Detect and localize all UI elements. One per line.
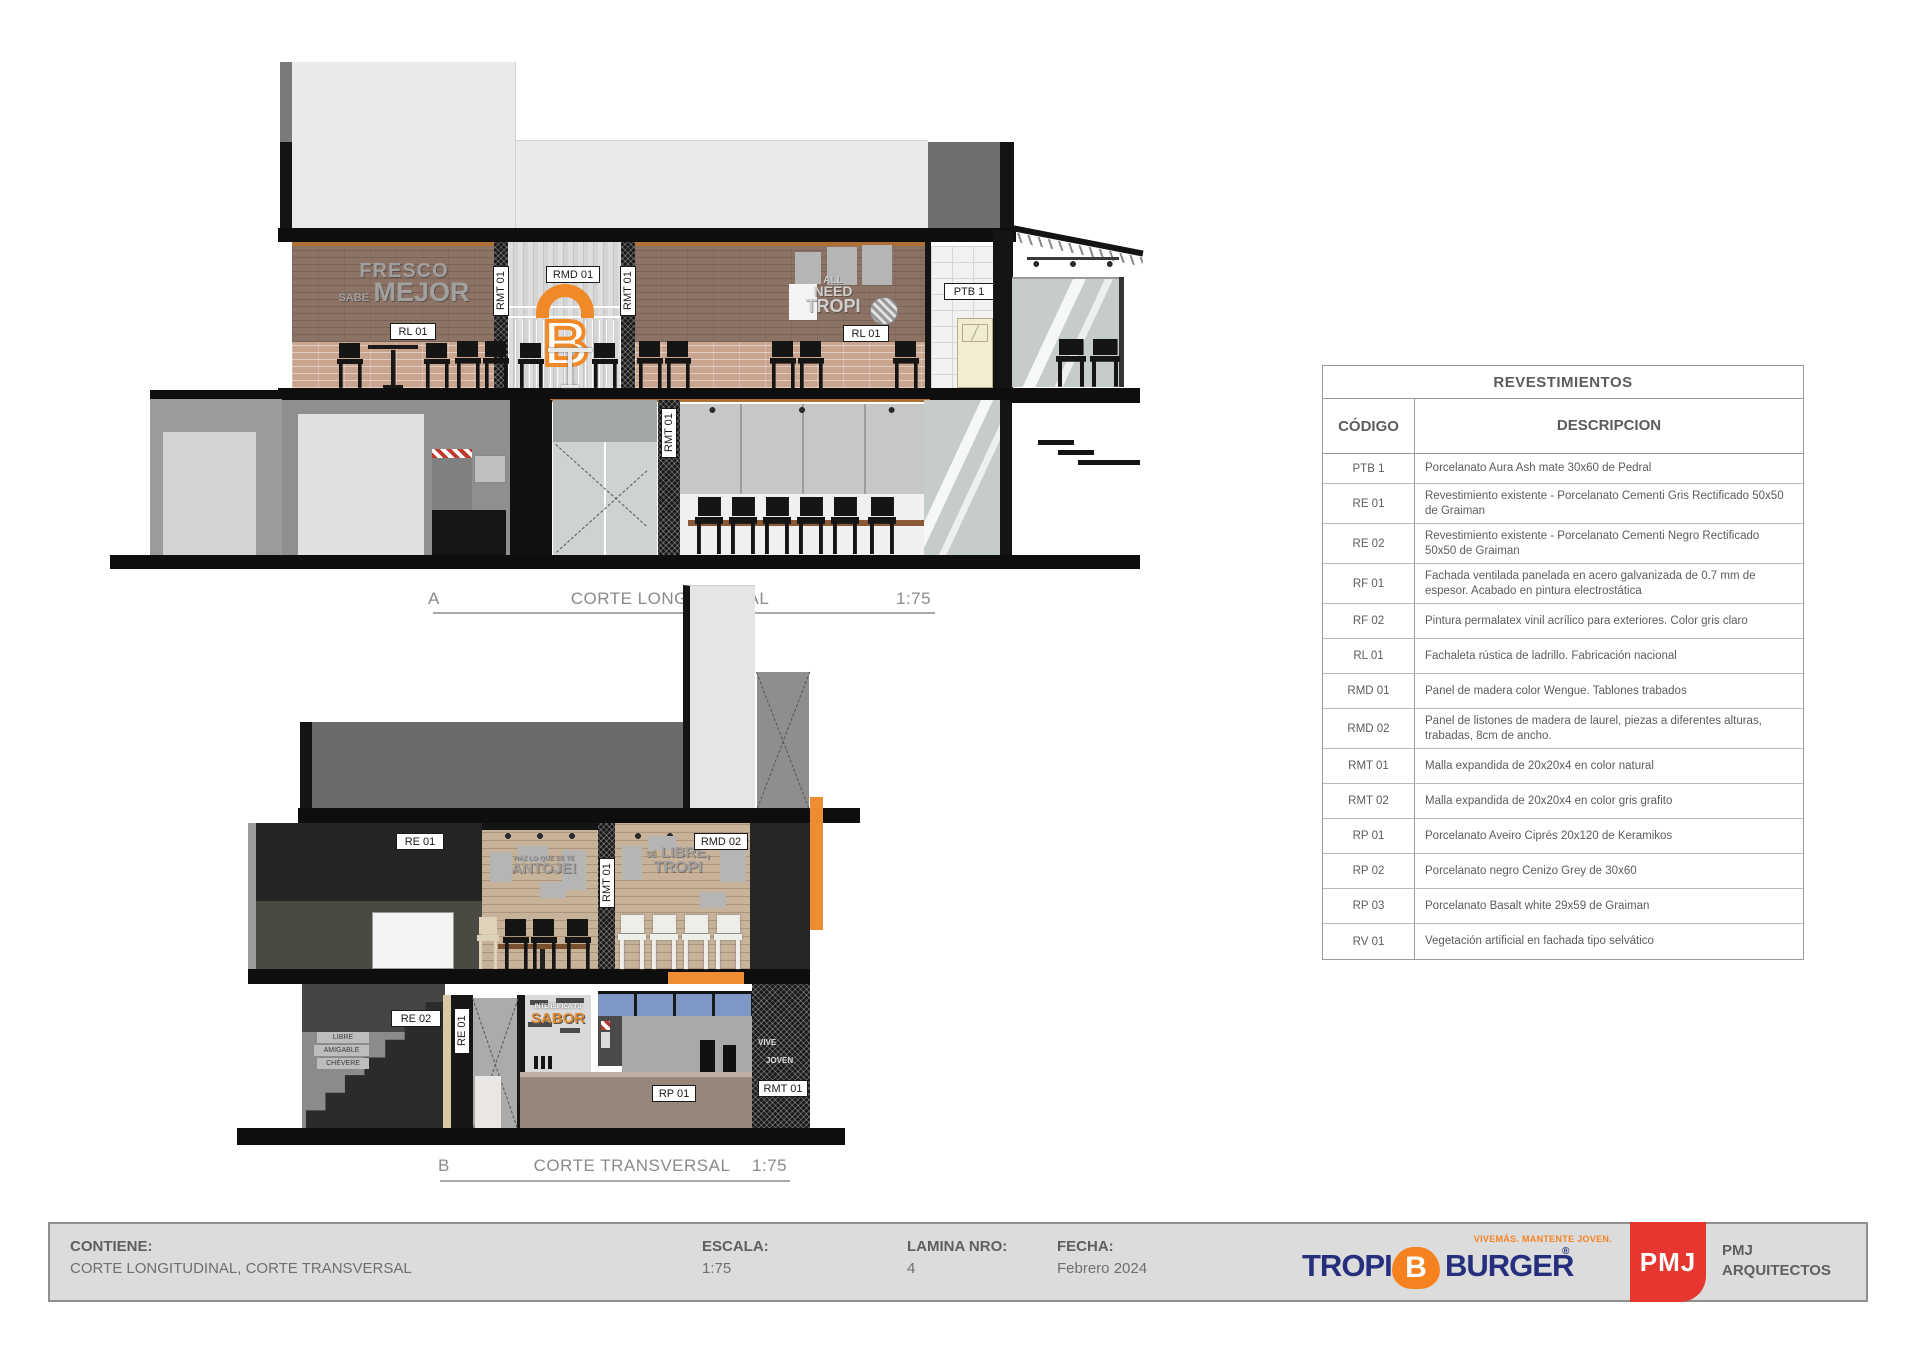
base-slab (237, 1128, 845, 1145)
materials-table: REVESTIMIENTOS CÓDIGO DESCRIPCION PTB 1P… (1322, 365, 1804, 960)
table-row: RP 03Porcelanato Basalt white 29x59 de G… (1323, 889, 1803, 924)
pmj-logo-text: PMJ (1640, 1247, 1696, 1278)
lamina-label: LAMINA NRO: (907, 1238, 1007, 1255)
firm-name-line1: PMJ (1722, 1242, 1753, 1259)
stair-sign-3: CHÉVERE (317, 1058, 369, 1069)
exterior-step-2 (1058, 450, 1094, 455)
stair-sign-2: AMIGABLE (314, 1045, 369, 1056)
dining-table (368, 345, 418, 388)
sheet-canvas: FRESCO SABE MEJOR RL 01 RMT 01 B RMD 01 … (0, 0, 1920, 1358)
material-desc: Revestimiento existente - Porcelanato Ce… (1415, 524, 1803, 563)
mezz-table (548, 348, 592, 388)
mezz-chair (518, 343, 544, 388)
brand-word-tropi: TROPI (1302, 1248, 1392, 1284)
bathroom-door-vent (962, 324, 988, 342)
mezz-chair (592, 343, 618, 388)
tag-rmt01-vb: RMT 01 (599, 858, 615, 908)
upper-left-strip (248, 823, 256, 969)
counter-chair (868, 497, 896, 554)
fresco-line2-small: SABE (338, 292, 369, 304)
tag-re01-v: RE 01 (454, 1008, 470, 1054)
white-chair (618, 915, 646, 969)
white-chair (714, 915, 742, 969)
tag-rl01-left: RL 01 (390, 323, 436, 340)
material-code: RMT 02 (1323, 784, 1415, 818)
tag-rmd02: RMD 02 (694, 833, 748, 850)
dining-chair (770, 341, 796, 388)
counter-chair (763, 497, 791, 554)
sabor-big: SABOR (528, 1010, 588, 1027)
material-desc: Vegetación artificial en fachada tipo se… (1415, 924, 1803, 959)
annex-roof (150, 390, 282, 399)
burger-b-letter: B (1405, 1253, 1427, 1283)
ground-column-black (510, 400, 552, 555)
firm-name-line2: ARQUITECTOS (1722, 1262, 1831, 1279)
material-desc: Porcelanato Basalt white 29x59 de Graima… (1415, 889, 1803, 923)
fresco-line2-big: MEJOR (373, 277, 469, 307)
bottle (534, 1056, 538, 1069)
round-logo-plate (870, 297, 898, 325)
material-desc: Malla expandida de 20x20x4 en color gris… (1415, 784, 1803, 818)
libre-small: SÉ (646, 850, 657, 859)
material-code: RMD 02 (1323, 709, 1415, 748)
dining-chair (798, 341, 824, 388)
tag-re01: RE 01 (396, 833, 444, 850)
column-header-descripcion: DESCRIPCION (1415, 399, 1803, 453)
material-code: RF 02 (1323, 604, 1415, 638)
display-lightbox (372, 912, 454, 969)
material-desc: Revestimiento existente - Porcelanato Ce… (1415, 484, 1803, 523)
roof-bulkhead (928, 142, 1000, 228)
glass-door-transom (553, 400, 657, 442)
black-stool (503, 919, 529, 969)
terrace-slab (1008, 388, 1140, 403)
tag-rmt01-v1: RMT 01 (493, 266, 509, 316)
roof-slab (278, 228, 1016, 242)
orange-soffit (668, 972, 744, 984)
white-chair (650, 915, 678, 969)
tag-rmt01-b-ground: RMT 01 (758, 1080, 808, 1097)
material-desc: Fachaleta rústica de ladrillo. Fabricaci… (1415, 639, 1803, 673)
wall-art-libre: SÉ LIBRE, TROPI (638, 846, 718, 875)
dining-chair (455, 341, 481, 388)
bottle (548, 1056, 552, 1069)
table-row: RP 01Porcelanato Aveiro Ciprés 20x120 de… (1323, 819, 1803, 854)
wood-wall-ceiling (482, 823, 598, 830)
material-code: RMD 01 (1323, 674, 1415, 708)
menu-scribble (556, 998, 584, 1003)
dining-chair (665, 341, 691, 388)
section-b-title: CORTE TRANSVERSAL (502, 1156, 762, 1176)
upper-right-wall (750, 823, 810, 969)
parapet-right (516, 140, 928, 228)
parapet-edge (300, 722, 312, 810)
menu-scribble (560, 1028, 580, 1033)
material-desc: Porcelanato negro Cenizo Grey de 30x60 (1415, 854, 1803, 888)
material-code: RP 02 (1323, 854, 1415, 888)
kitchen-equip-stripe (432, 449, 472, 458)
stair-tower (683, 585, 755, 833)
dining-chair (337, 343, 363, 388)
section-b-drawing: RE 01 HAZ LO QUE SE TE ANTOJE! RMT 01 SÉ… (0, 560, 1200, 1220)
service-door-panel (475, 1076, 501, 1128)
track-light-bulbs (1027, 260, 1119, 268)
roof-slab (298, 808, 860, 823)
materials-table-title: REVESTIMIENTOS (1323, 366, 1803, 399)
exterior-step-3 (1078, 460, 1140, 465)
wall-art-antoje: HAZ LO QUE SE TE ANTOJE! (502, 856, 586, 876)
tag-re02: RE 02 (391, 1010, 441, 1027)
menu-screens (598, 991, 752, 1016)
section-b-id: B (438, 1156, 450, 1176)
material-code: RP 01 (1323, 819, 1415, 853)
material-code: PTB 1 (1323, 454, 1415, 483)
counter-chair (797, 497, 825, 554)
tag-rl01-right: RL 01 (843, 325, 889, 342)
pmj-logo-square: PMJ (1630, 1222, 1706, 1302)
kitchen-cabinet (474, 455, 506, 483)
material-desc: Porcelanato Aveiro Ciprés 20x120 de Kera… (1415, 819, 1803, 853)
black-stool (565, 919, 591, 969)
parapet-edge-black (280, 142, 292, 228)
material-desc: Panel de madera color Wengue. Tablones t… (1415, 674, 1803, 708)
table-row: RV 01Vegetación artificial en fachada ti… (1323, 924, 1803, 959)
parapet-left (292, 62, 516, 228)
table-row: RF 01Fachada ventilada panelada en acero… (1323, 564, 1803, 604)
frame-a4 (540, 882, 566, 898)
counter-chair (729, 497, 757, 554)
title-block: CONTIENE: CORTE LONGITUDINAL, CORTE TRAN… (48, 1222, 1868, 1302)
cash-register-1 (700, 1040, 715, 1073)
terrace-chair-2 (1090, 339, 1120, 387)
ground-dining-lights (690, 406, 914, 414)
white-chair (682, 915, 710, 969)
brand-word-burger: BURGER (1445, 1248, 1573, 1284)
stair-sign-1: LIBRE (317, 1032, 369, 1043)
column-header-codigo: CÓDIGO (1323, 399, 1415, 453)
storefront-post (1000, 400, 1012, 555)
ground-left-panel (298, 414, 424, 555)
ant-line3: TROPI (796, 298, 870, 315)
storefront-glass (924, 400, 1002, 555)
material-code: RE 02 (1323, 524, 1415, 563)
material-desc: Fachada ventilada panelada en acero galv… (1415, 564, 1803, 603)
wall-re01-upper (256, 823, 482, 901)
contiene-label: CONTIENE: (70, 1238, 153, 1255)
material-desc: Pintura permalatex vinil acrílico para e… (1415, 604, 1803, 638)
escala-label: ESCALA: (702, 1238, 769, 1255)
exterior-step-1 (1038, 440, 1074, 445)
material-desc: Malla expandida de 20x20x4 en color natu… (1415, 749, 1803, 783)
parapet-dark (312, 722, 683, 810)
fecha-value: Febrero 2024 (1057, 1260, 1147, 1277)
tag-rmt01-v3: RMT 01 (661, 408, 677, 458)
material-code: RE 01 (1323, 484, 1415, 523)
material-desc: Porcelanato Aura Ash mate 30x60 de Pedra… (1415, 454, 1803, 483)
table-row: PTB 1Porcelanato Aura Ash mate 30x60 de … (1323, 454, 1803, 484)
frame-b4 (700, 892, 726, 908)
kitchen-fridge (432, 458, 472, 510)
door-jamb-tan (443, 995, 451, 1128)
material-code: RMT 01 (1323, 749, 1415, 783)
dining-chair (483, 341, 509, 388)
counter-front (520, 1077, 752, 1128)
table-row: RMT 02Malla expandida de 20x20x4 en colo… (1323, 784, 1803, 819)
tag-rp01: RP 01 (652, 1085, 696, 1102)
brand-tagline: VIVEMÁS. MANTENTE JOVEN. (1474, 1234, 1612, 1244)
ground-dining-glass (680, 404, 924, 494)
kitchen-counter-base (432, 510, 506, 555)
material-code: RL 01 (1323, 639, 1415, 673)
cash-register-2 (723, 1045, 736, 1073)
glass-door-mullion (604, 442, 606, 555)
track-lights-1 (500, 832, 580, 840)
parapet-edge-dark (280, 62, 292, 142)
wall-art-vive: VIVE (758, 1038, 804, 1047)
section-b-scale: 1:75 (752, 1156, 787, 1176)
annex-panel (163, 432, 256, 555)
table-row: RE 02Revestimiento existente - Porcelana… (1323, 524, 1803, 564)
wall-art-joven: JOVEN (766, 1056, 812, 1065)
tropiburger-logo: VIVEMÁS. MANTENTE JOVEN. TROPI B BURGER … (1300, 1234, 1620, 1294)
black-stool (531, 919, 557, 969)
roof-bulkhead-edge (1000, 142, 1014, 228)
table-row: RL 01Fachaleta rústica de ladrillo. Fabr… (1323, 639, 1803, 674)
counter-chair (831, 497, 859, 554)
table-row: RMD 01Panel de madera color Wengue. Tabl… (1323, 674, 1803, 709)
dining-chair (424, 343, 450, 388)
lamina-value: 4 (907, 1260, 915, 1277)
material-desc: Panel de listones de madera de laurel, p… (1415, 709, 1803, 748)
tag-ptb1: PTB 1 (944, 283, 994, 300)
table-row: RP 02Porcelanato negro Cenizo Grey de 30… (1323, 854, 1803, 889)
antoje-big: ANTOJE! (502, 862, 586, 876)
brand-reg-mark: ® (1562, 1246, 1569, 1257)
orange-fin (810, 797, 823, 930)
contiene-value: CORTE LONGITUDINAL, CORTE TRANSVERSAL (70, 1260, 412, 1277)
table-row: RE 01Revestimiento existente - Porcelana… (1323, 484, 1803, 524)
drink-machine-brand (601, 1021, 610, 1030)
burger-b-icon: B (1392, 1247, 1440, 1289)
dining-chair (637, 341, 663, 388)
materials-table-header: CÓDIGO DESCRIPCION (1323, 399, 1803, 454)
fecha-label: FECHA: (1057, 1238, 1114, 1255)
drink-machine-panel (601, 1032, 610, 1048)
wall-art-fresco: FRESCO SABE MEJOR (326, 262, 482, 305)
material-code: RP 03 (1323, 889, 1415, 923)
right-wall-black (993, 230, 1013, 388)
wall-art-sabor: INTENSIFICA TU SABOR (528, 1004, 588, 1027)
tropi-big: TROPI (638, 861, 718, 876)
tag-rmt01-v2: RMT 01 (620, 266, 636, 316)
counter-chair (695, 497, 723, 554)
material-code: RF 01 (1323, 564, 1415, 603)
dining-chair (893, 341, 919, 388)
table-row: RMT 01Malla expandida de 20x20x4 en colo… (1323, 749, 1803, 784)
material-code: RV 01 (1323, 924, 1415, 959)
table-row: RMD 02Panel de listones de madera de lau… (1323, 709, 1803, 749)
escala-value: 1:75 (702, 1260, 731, 1277)
terrace-chair-1 (1056, 339, 1086, 387)
wall-art-all-need-tropi: ALL NEED TROPI (796, 276, 870, 315)
tag-rmd01: RMD 01 (546, 266, 600, 283)
section-b-underline (440, 1180, 790, 1182)
cream-chair (477, 917, 499, 969)
bottle (541, 1056, 545, 1069)
table-row: RF 02Pintura permalatex vinil acrílico p… (1323, 604, 1803, 639)
